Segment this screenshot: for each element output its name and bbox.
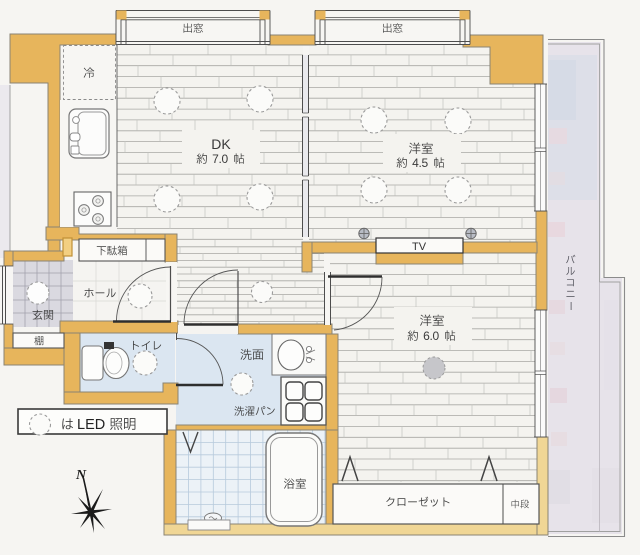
- svg-text:DK: DK: [211, 136, 231, 152]
- svg-text:6.0: 6.0: [423, 329, 439, 343]
- svg-text:4.5: 4.5: [412, 156, 428, 170]
- svg-text:LED: LED: [77, 417, 105, 433]
- svg-text:N: N: [75, 468, 87, 483]
- svg-text:7.0: 7.0: [212, 152, 228, 166]
- svg-text:TV: TV: [412, 241, 427, 253]
